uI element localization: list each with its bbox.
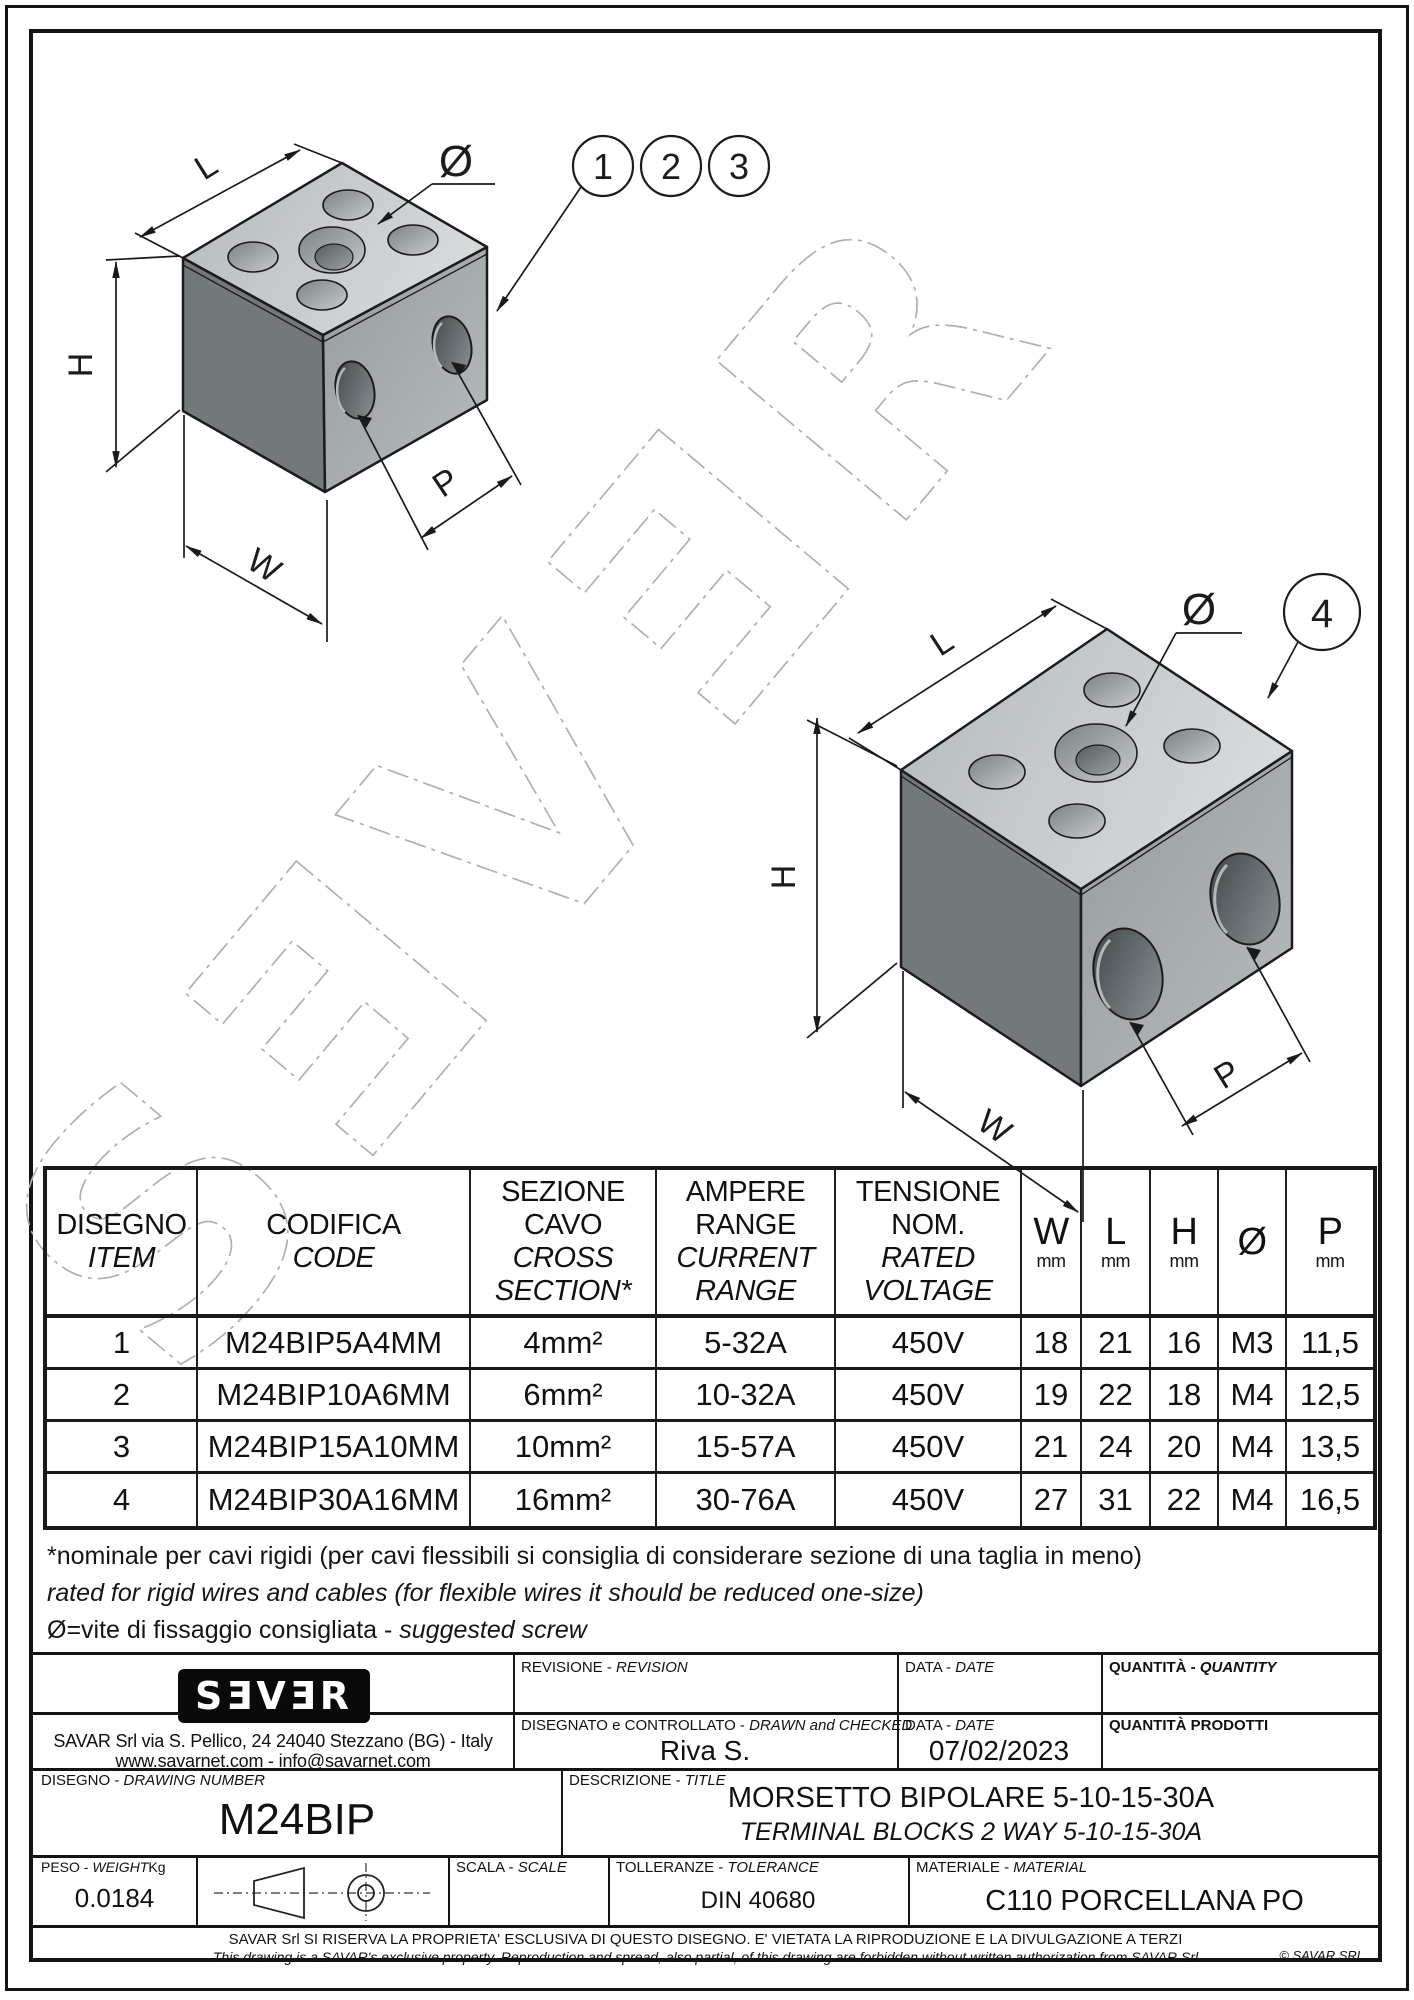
table-row-3-section: 10mm² bbox=[471, 1422, 657, 1474]
col-header-ampere: AMPERE RANGE CURRENT RANGE bbox=[657, 1170, 836, 1318]
balloon-2: 2 bbox=[661, 146, 681, 187]
col-header-item: DISEGNO ITEM bbox=[47, 1170, 198, 1318]
table-row-2-voltage: 450V bbox=[836, 1370, 1022, 1422]
savar-logo: SƎVƎR bbox=[178, 1669, 370, 1723]
drawn-by-value: Riva S. bbox=[513, 1735, 897, 1767]
disclaimer-line-it: SAVAR Srl SI RISERVA LA PROPRIETA' ESCLU… bbox=[33, 1931, 1378, 1948]
dim-label-l: L bbox=[188, 146, 224, 188]
footnotes: *nominale per cavi rigidi (per cavi fles… bbox=[47, 1541, 1373, 1652]
table-row-1-ampere: 5-32A bbox=[657, 1318, 836, 1370]
spec-table: DISEGNO ITEM CODIFICA CODE SEZIONE CAVO … bbox=[43, 1166, 1377, 1530]
company-web-email: www.savarnet.com - info@savarnet.com bbox=[33, 1751, 513, 1772]
description-it: MORSETTO BIPOLARE 5-10-15-30A bbox=[561, 1782, 1381, 1815]
label-tolerance: TOLLERANZE - TOLERANCE bbox=[616, 1859, 819, 1876]
title-block: SƎVƎR SAVAR Srl via S. Pellico, 24 24040… bbox=[33, 1652, 1378, 1962]
label-quantity-produced: QUANTITÀ PRODOTTI bbox=[1109, 1717, 1268, 1734]
dim-label-l: L bbox=[924, 622, 961, 664]
table-row-4-item: 4 bbox=[47, 1474, 198, 1526]
dim-label-w: W bbox=[240, 541, 288, 590]
label-scale: SCALA - SCALE bbox=[456, 1859, 567, 1876]
table-row-1-code: M24BIP5A4MM bbox=[198, 1318, 471, 1370]
table-row-4-voltage: 450V bbox=[836, 1474, 1022, 1526]
disclaimer-line-en: This drawing is a SAVAR's exclusive prop… bbox=[33, 1949, 1378, 1965]
col-header-section: SEZIONE CAVO CROSS SECTION* bbox=[471, 1170, 657, 1318]
tolerance-value: DIN 40680 bbox=[608, 1887, 908, 1915]
dim-label-dia: Ø bbox=[439, 137, 473, 186]
table-row-2-code: M24BIP10A6MM bbox=[198, 1370, 471, 1422]
table-row-4-code: M24BIP30A16MM bbox=[198, 1474, 471, 1526]
table-row-4-section: 16mm² bbox=[471, 1474, 657, 1526]
date-value: 07/02/2023 bbox=[897, 1735, 1101, 1767]
balloon-4: 4 bbox=[1311, 592, 1333, 636]
col-header-p: P mm bbox=[1287, 1170, 1373, 1318]
divider bbox=[33, 1925, 1378, 1928]
table-row-3-voltage: 450V bbox=[836, 1422, 1022, 1474]
label-date-a: DATA - DATE bbox=[905, 1659, 994, 1676]
drawing-number-value: M24BIP bbox=[33, 1795, 561, 1845]
material-value: C110 PORCELLANA PO bbox=[908, 1885, 1381, 1918]
dim-label-h: H bbox=[62, 353, 100, 378]
col-header-h: H mm bbox=[1151, 1170, 1219, 1318]
table-row-2-section: 6mm² bbox=[471, 1370, 657, 1422]
divider bbox=[448, 1855, 450, 1925]
balloon-4-group: 4 bbox=[1284, 574, 1360, 650]
savar-logo-text: SƎVƎR bbox=[195, 1677, 353, 1715]
balloon-3: 3 bbox=[729, 146, 749, 187]
table-row-3-code: M24BIP15A10MM bbox=[198, 1422, 471, 1474]
table-row-3-item: 3 bbox=[47, 1422, 198, 1474]
dim-label-w: W bbox=[970, 1102, 1018, 1152]
copyright-note: © SAVAR SRL bbox=[1279, 1948, 1364, 1963]
label-revision: REVISIONE - REVISION bbox=[521, 1659, 688, 1676]
table-row-1-section: 4mm² bbox=[471, 1318, 657, 1370]
label-material: MATERIALE - MATERIAL bbox=[916, 1859, 1087, 1876]
footnote-3: Ø=vite di fissaggio consigliata - sugges… bbox=[47, 1615, 1373, 1645]
table-row-3-ampere: 15-57A bbox=[657, 1422, 836, 1474]
terminal-block-view-4 bbox=[901, 629, 1292, 1086]
projection-symbol bbox=[196, 1855, 448, 1925]
col-header-voltage: TENSIONE NOM. RATED VOLTAGE bbox=[836, 1170, 1022, 1318]
table-row-1-voltage: 450V bbox=[836, 1318, 1022, 1370]
balloon-1: 1 bbox=[593, 146, 613, 187]
label-quantity: QUANTITÀ - QUANTITY bbox=[1109, 1659, 1277, 1676]
dim-label-h: H bbox=[765, 865, 803, 890]
table-row-4-ampere: 30-76A bbox=[657, 1474, 836, 1526]
footnote-2: rated for rigid wires and cables (for fl… bbox=[47, 1578, 1373, 1608]
col-header-w: W mm bbox=[1022, 1170, 1082, 1318]
balloons-1-2-3: 1 2 3 bbox=[573, 136, 769, 196]
table-row-1-item: 1 bbox=[47, 1318, 198, 1370]
label-date-b: DATA - DATE bbox=[905, 1717, 994, 1734]
col-header-l: L mm bbox=[1082, 1170, 1151, 1318]
label-drawing-number: DISEGNO - DRAWING NUMBER bbox=[41, 1772, 265, 1789]
description-en: TERMINAL BLOCKS 2 WAY 5-10-15-30A bbox=[561, 1818, 1381, 1847]
terminal-block-view-1 bbox=[183, 163, 487, 492]
header-code-it: CODIFICA bbox=[266, 1209, 401, 1242]
col-header-dia: Ø bbox=[1219, 1170, 1287, 1318]
divider bbox=[1101, 1655, 1103, 1768]
company-address: SAVAR Srl via S. Pellico, 24 24040 Stezz… bbox=[33, 1731, 513, 1752]
dim-label-p: P bbox=[426, 461, 466, 505]
weight-value: 0.0184 bbox=[33, 1883, 196, 1914]
label-drawn-checked: DISEGNATO e CONTROLLATO - DRAWN and CHEC… bbox=[521, 1717, 912, 1734]
col-header-code: CODIFICA CODE bbox=[198, 1170, 471, 1318]
header-item-en: ITEM bbox=[88, 1242, 155, 1275]
table-row-2-item: 2 bbox=[47, 1370, 198, 1422]
dim-label-dia: Ø bbox=[1182, 585, 1216, 634]
label-weight: PESO - WEIGHTKg bbox=[41, 1859, 165, 1875]
footnote-1: *nominale per cavi rigidi (per cavi fles… bbox=[47, 1541, 1373, 1571]
technical-drawing-sheet: SƎVƎR bbox=[0, 0, 1414, 2000]
header-code-en: CODE bbox=[293, 1242, 375, 1275]
header-item-it: DISEGNO bbox=[56, 1209, 186, 1242]
table-row-2-ampere: 10-32A bbox=[657, 1370, 836, 1422]
